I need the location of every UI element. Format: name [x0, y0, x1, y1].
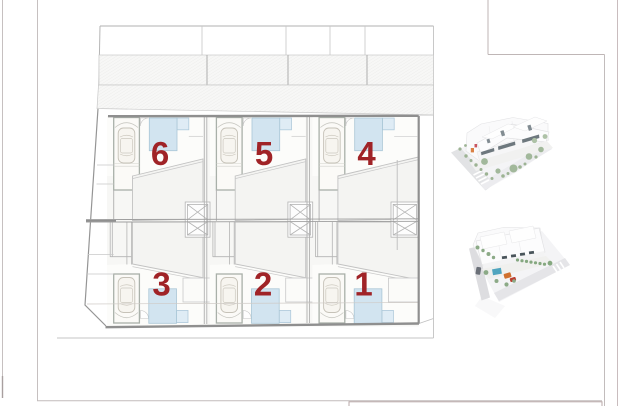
svg-text:3: 3 — [152, 266, 170, 303]
svg-text:2: 2 — [254, 266, 272, 303]
svg-text:6: 6 — [151, 135, 169, 172]
svg-text:5: 5 — [255, 135, 273, 172]
svg-text:1: 1 — [354, 266, 372, 303]
svg-text:4: 4 — [357, 135, 376, 172]
